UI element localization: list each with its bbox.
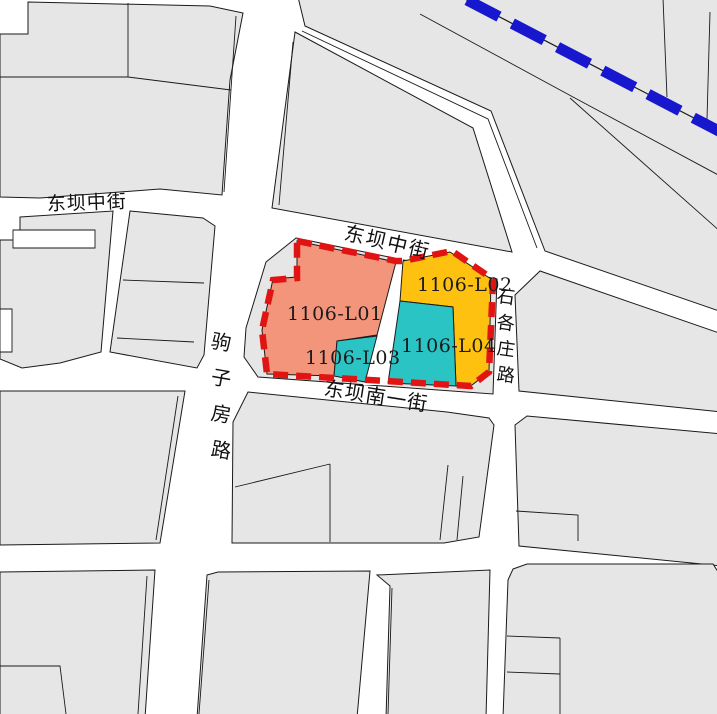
street-dongba-middle-west: 东坝中街	[46, 191, 127, 216]
parcel-block-bottom-right	[503, 564, 717, 714]
street-name-char: 驹	[209, 330, 233, 356]
parcel-block-southwest-west	[0, 211, 113, 368]
parcel-block-northwest	[0, 2, 243, 198]
parcel-block-southwest-east	[110, 211, 215, 368]
street-name-char: 路	[209, 438, 233, 464]
street-name-char: 路	[496, 364, 517, 386]
map-canvas: 东坝中街 东坝中街 东坝南一街 驹子房路 石各庄路 1106-L01 1106-…	[0, 0, 717, 714]
planning-map: 东坝中街 东坝中街 东坝南一街 驹子房路 石各庄路 1106-L01 1106-…	[0, 0, 717, 714]
street-name-text: 东坝中街	[46, 191, 127, 216]
street-name-char: 子	[209, 367, 233, 392]
label-1106-L01: 1106-L01	[287, 303, 383, 325]
parcel-block-southeast	[515, 416, 717, 566]
parcel-block-bottom-center-left	[197, 571, 370, 714]
parcel-block-south-center-west	[0, 391, 185, 545]
label-1106-L02: 1106-L02	[417, 274, 513, 296]
parcel-block-south-center	[232, 392, 494, 543]
street-name-char: 房	[209, 402, 233, 428]
street-name-char: 各	[496, 312, 517, 334]
label-1106-L04: 1106-L04	[401, 335, 497, 357]
label-1106-L03: 1106-L03	[305, 347, 401, 369]
street-shigezhuang-road: 石各庄路	[496, 286, 517, 386]
street-name-char: 庄	[496, 338, 517, 360]
parcel-block-bottom-center-right	[377, 570, 490, 714]
street-juzifang-road: 驹子房路	[209, 330, 233, 464]
parcel-block-bottom-left	[0, 570, 155, 714]
